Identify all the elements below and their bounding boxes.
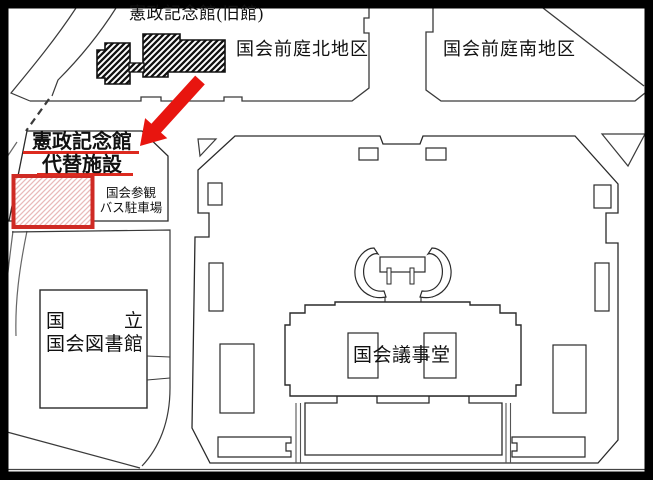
annex-narrow-east	[595, 263, 609, 311]
south-building-west	[218, 437, 291, 457]
label-bus-parking-line1: 国会参観	[106, 186, 156, 200]
map-linework	[0, 0, 653, 480]
label-library-line1-right: 立	[124, 312, 143, 332]
label-south-garden: 国会前庭南地区	[443, 40, 576, 59]
annex-large-east	[553, 345, 586, 413]
label-facility-line1: 憲政記念館	[32, 132, 132, 153]
gate-box-west	[359, 148, 378, 160]
label-library-line1: 国 立	[46, 312, 143, 332]
label-bus-parking-line2: バス駐車場	[100, 201, 163, 215]
label-library-line2: 国会図書館	[46, 335, 143, 355]
label-bus-parking: 国会参観 バス駐車場	[88, 186, 174, 216]
old-hall-main-building	[143, 34, 225, 77]
label-facility-line2: 代替施設	[42, 155, 122, 176]
facility-site-highlight	[14, 176, 93, 227]
label-facility: 憲政記念館 代替施設	[22, 132, 142, 176]
annex-narrow-west	[209, 263, 223, 311]
map: 憲政記念館(旧館) 国会前庭北地区 国会前庭南地区 憲政記念館 代替施設 国会参…	[0, 0, 653, 480]
side-building-west-gate	[208, 183, 222, 205]
old-hall-connector	[129, 63, 144, 72]
gate-box-east	[426, 148, 446, 160]
annex-large-west	[220, 344, 254, 413]
south-building-east	[512, 437, 585, 457]
label-old-hall: 憲政記念館(旧館)	[129, 5, 264, 23]
label-library-line1-left: 国	[46, 312, 65, 332]
entrance-pillar-east	[410, 268, 414, 284]
label-diet-building: 国会議事堂	[353, 346, 451, 366]
label-north-garden: 国会前庭北地区	[236, 40, 369, 59]
label-library: 国 立 国会図書館	[46, 312, 143, 355]
entrance-pillar-west	[387, 268, 391, 284]
side-building-east-gate	[594, 185, 611, 208]
diet-building-south-wing	[305, 396, 502, 455]
